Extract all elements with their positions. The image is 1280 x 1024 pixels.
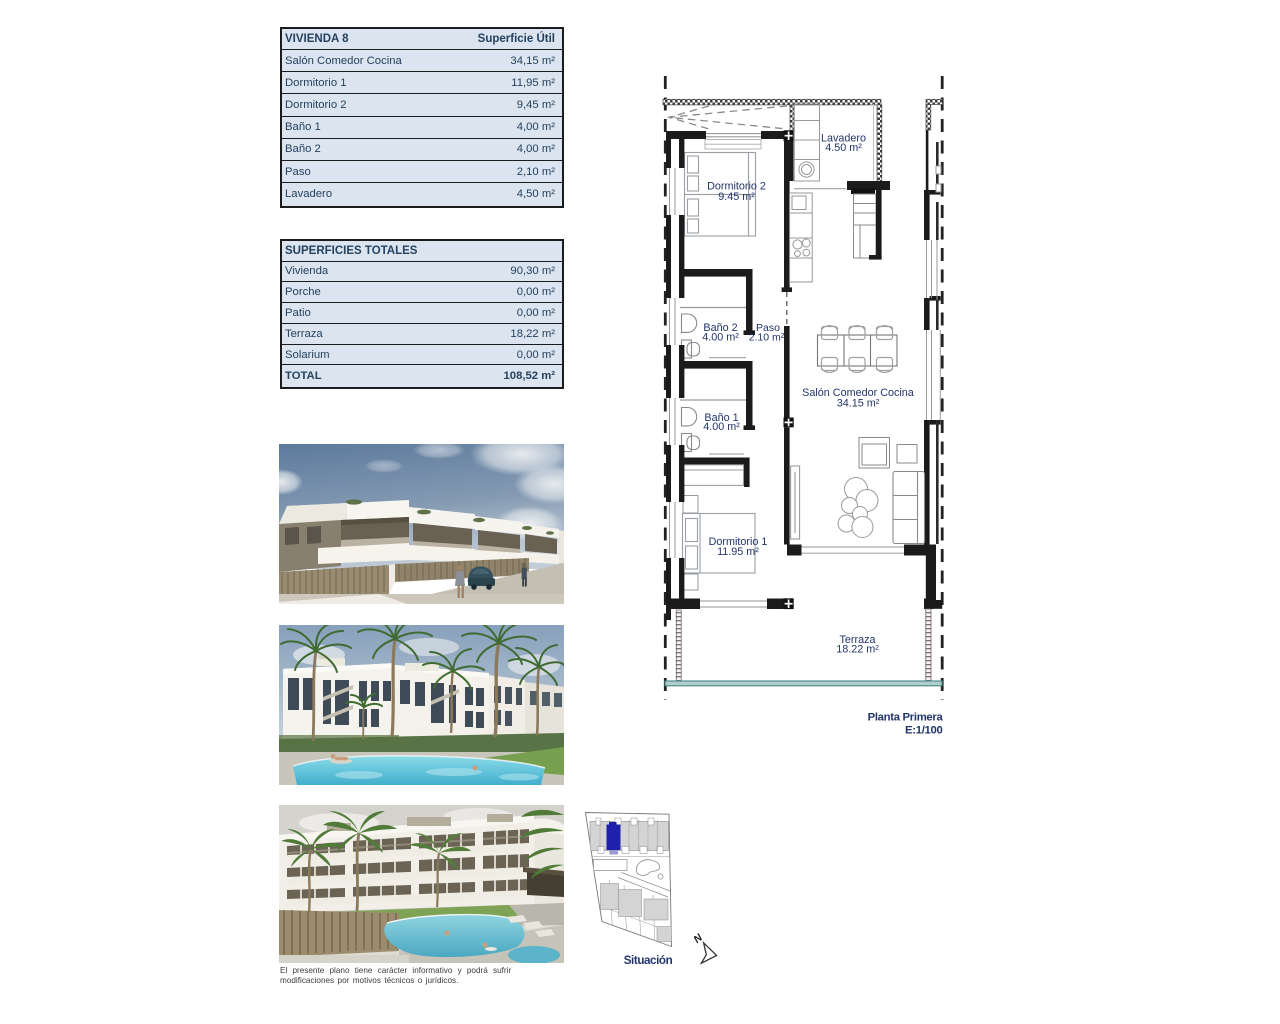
svg-text:18.22 m²: 18.22 m² <box>836 643 879 655</box>
svg-text:2.10 m²: 2.10 m² <box>749 331 785 343</box>
svg-text:11.95 m²: 11.95 m² <box>717 546 759 558</box>
svg-text:N: N <box>691 931 705 945</box>
svg-text:4.00 m²: 4.00 m² <box>703 421 740 433</box>
svg-text:4.00 m²: 4.00 m² <box>702 331 739 343</box>
svg-text:9.45 m²: 9.45 m² <box>718 191 755 203</box>
svg-text:E:1/100: E:1/100 <box>905 724 942 736</box>
svg-text:4.50 m²: 4.50 m² <box>825 142 862 154</box>
svg-text:Planta Primera: Planta Primera <box>868 712 944 724</box>
svg-text:34.15 m²: 34.15 m² <box>837 398 880 410</box>
svg-text:Situación: Situación <box>624 954 673 967</box>
